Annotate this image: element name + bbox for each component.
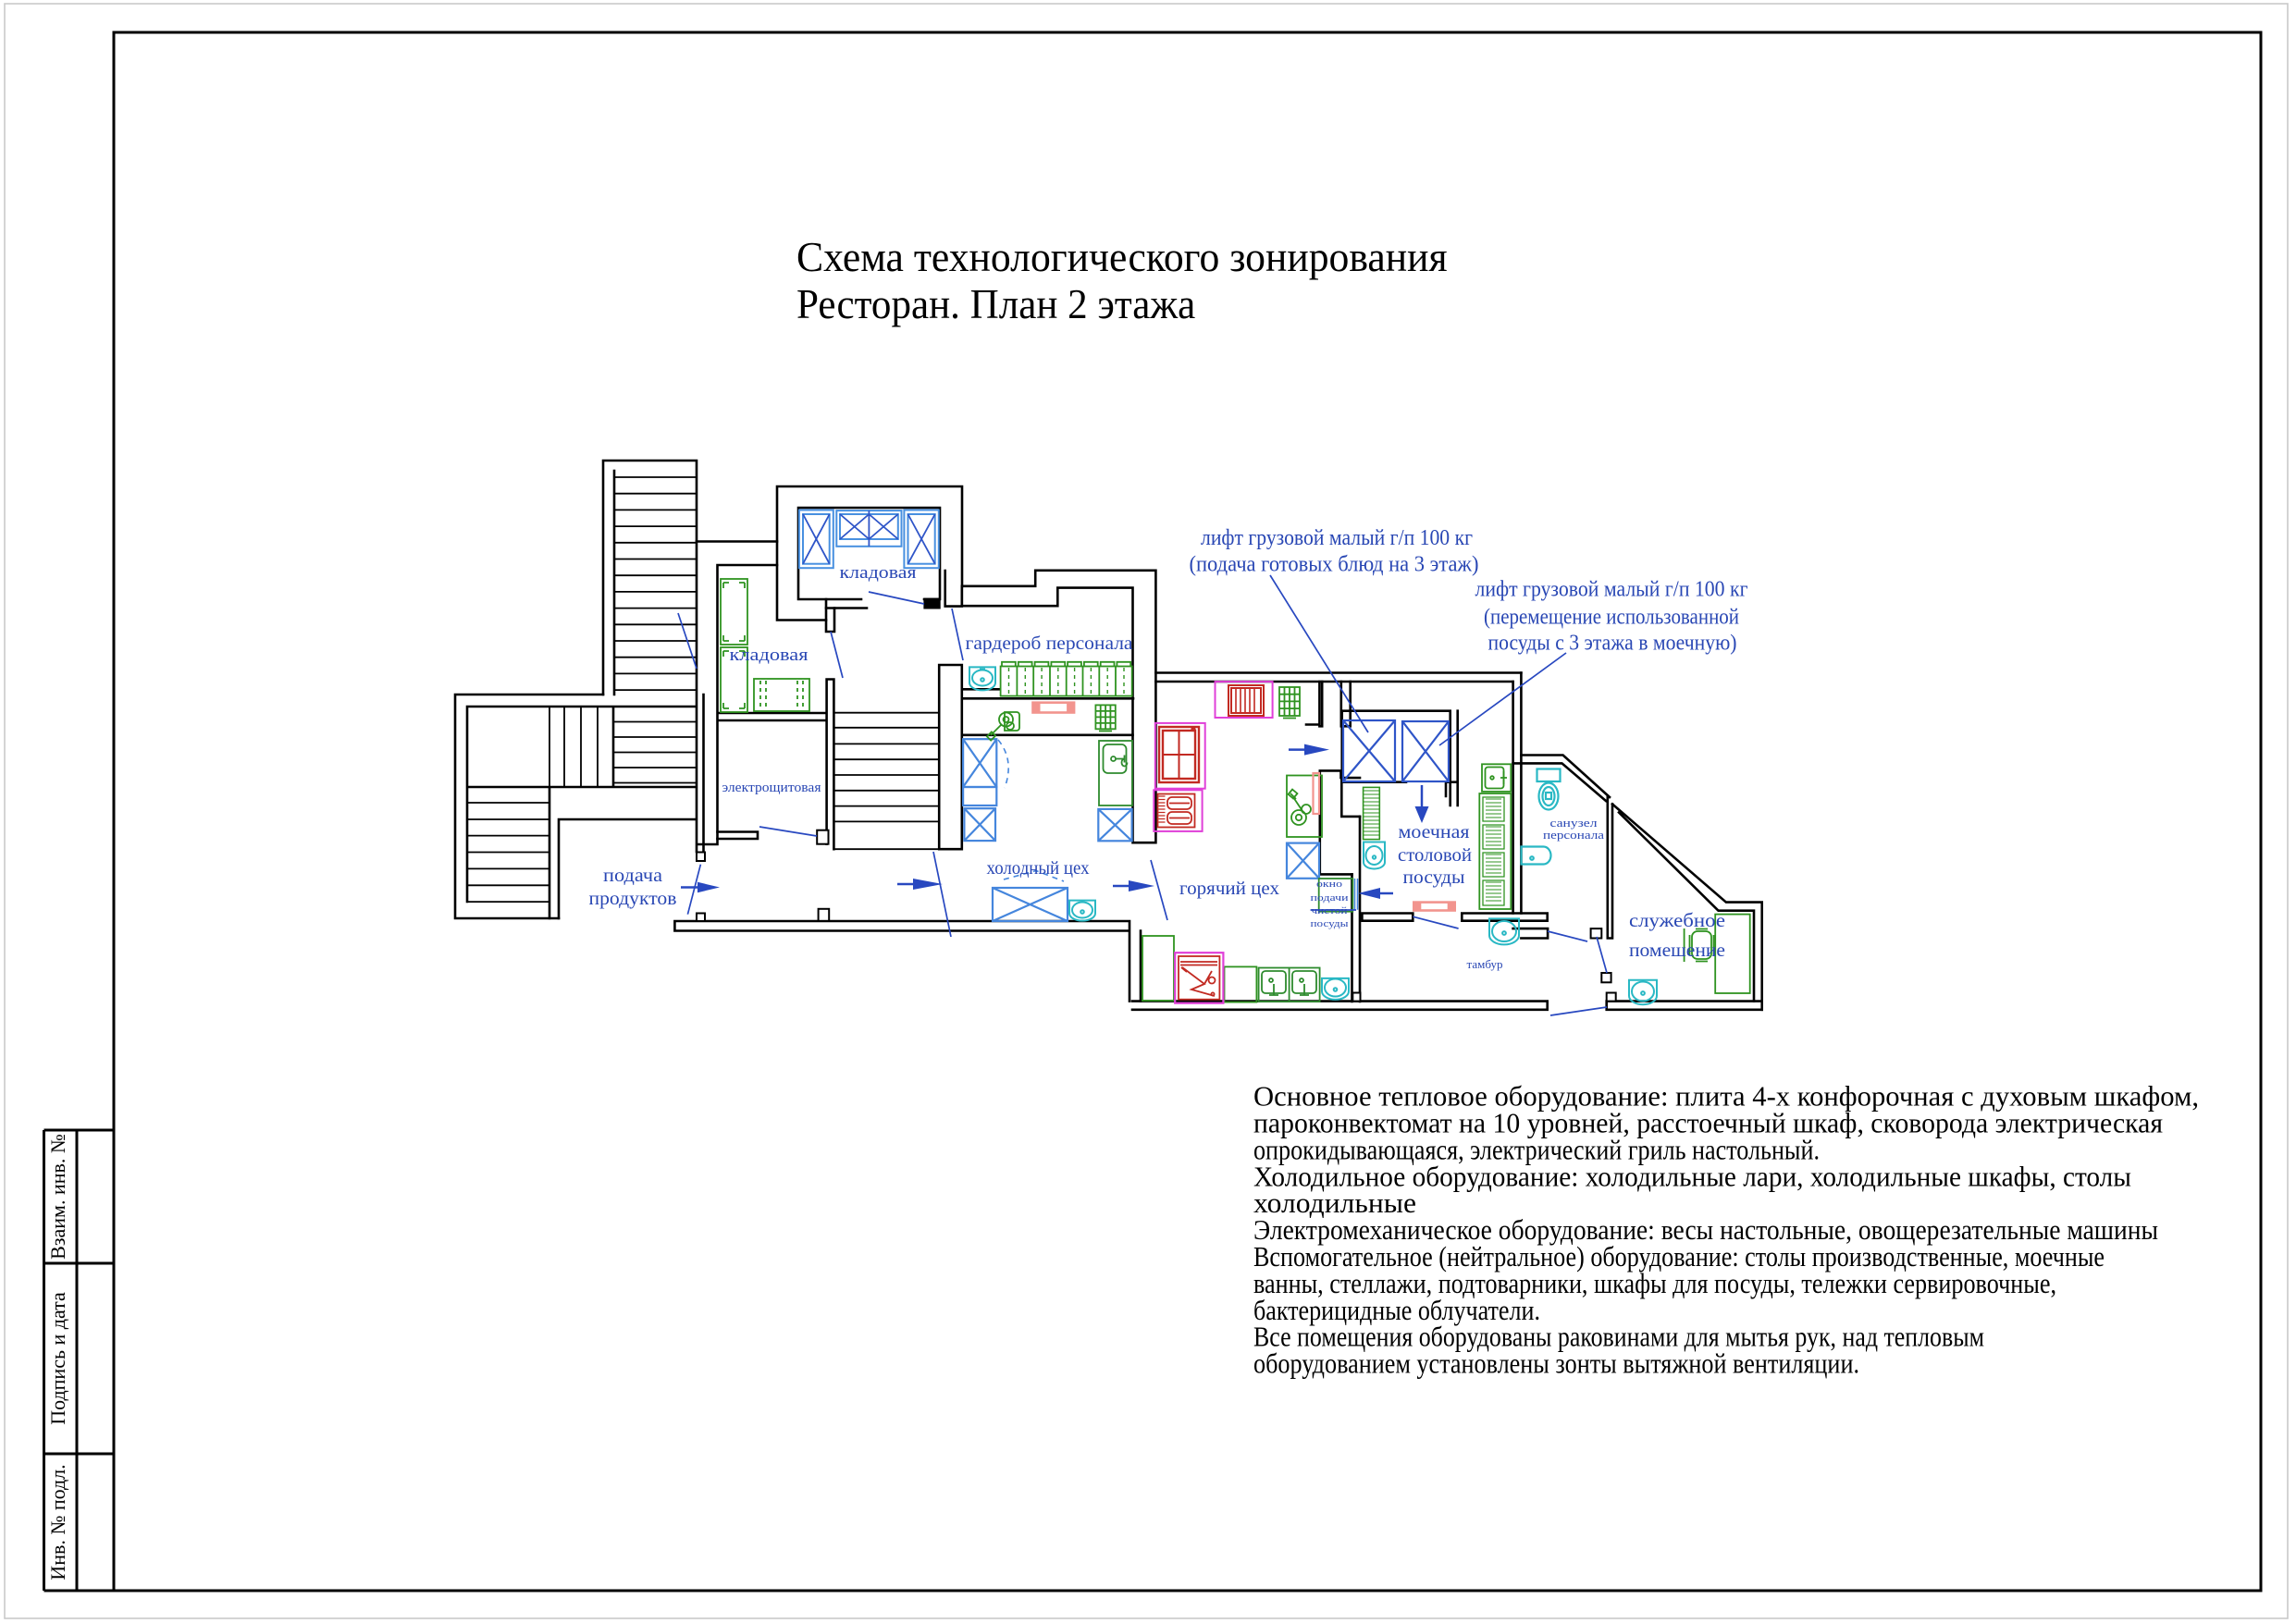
svg-text:(перемещение использованной: (перемещение использованной: [1484, 606, 1739, 630]
svg-text:тамбур: тамбур: [1467, 957, 1503, 971]
svg-text:подача: подача: [603, 866, 662, 886]
svg-text:горячий цех: горячий цех: [1179, 879, 1279, 899]
svg-text:Подпись и дата: Подпись и дата: [46, 1292, 69, 1425]
svg-text:подачи: подачи: [1311, 892, 1349, 904]
svg-text:служебное: служебное: [1629, 909, 1725, 931]
svg-text:лифт грузовой малый г/п 100 кг: лифт грузовой малый г/п 100 кг: [1475, 578, 1748, 602]
svg-text:Инв. № подл.: Инв. № подл.: [46, 1464, 69, 1580]
svg-text:Ресторан. План 2 этажа: Ресторан. План 2 этажа: [796, 280, 1195, 327]
svg-text:столовой: столовой: [1398, 845, 1472, 866]
svg-text:чистой: чистой: [1312, 905, 1348, 916]
svg-text:персонала: персонала: [1543, 828, 1604, 842]
svg-text:посуды: посуды: [1403, 867, 1465, 888]
svg-text:Схема технологического зониров: Схема технологического зонирования: [796, 233, 1448, 280]
svg-text:помешение: помешение: [1629, 939, 1725, 961]
svg-text:холодный цех: холодный цех: [987, 858, 1090, 879]
svg-text:посуды: посуды: [1311, 918, 1350, 929]
svg-text:(подача готовых блюд на 3 этаж: (подача готовых блюд на 3 этаж): [1190, 553, 1479, 577]
svg-text:гардероб персонала: гардероб персонала: [966, 633, 1133, 654]
svg-text:продуктов: продуктов: [589, 889, 677, 909]
svg-text:окно: окно: [1316, 879, 1343, 890]
svg-text:оборудованием установлены зонт: оборудованием установлены зонты вытяжной…: [1253, 1347, 1859, 1380]
svg-text:Взаим. инв. №: Взаим. инв. №: [46, 1134, 69, 1260]
svg-text:кладовая: кладовая: [840, 563, 917, 583]
svg-text:кладовая: кладовая: [730, 646, 809, 665]
svg-text:электрощитовая: электрощитовая: [722, 781, 821, 795]
svg-text:посуды с 3 этажа в моечную): посуды с 3 этажа в моечную): [1488, 632, 1737, 656]
svg-text:моечная: моечная: [1399, 822, 1470, 842]
svg-text:лифт грузовой малый г/п 100 кг: лифт грузовой малый г/п 100 кг: [1201, 526, 1473, 550]
